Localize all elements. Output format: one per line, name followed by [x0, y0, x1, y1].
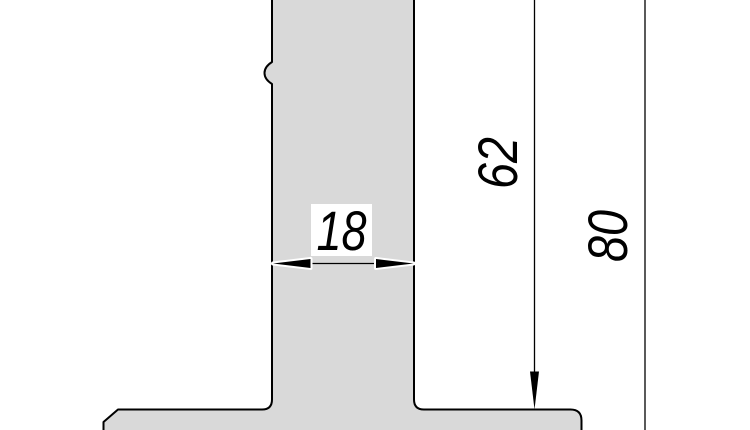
dim-text-upper-height: 62	[466, 137, 529, 189]
t-profile-drawing: 18 62 80	[0, 0, 750, 430]
dim-text-total-height: 80	[576, 210, 639, 262]
dim-text-stem-width: 18	[317, 199, 367, 262]
arrowhead-down-icon	[530, 372, 539, 410]
drawing-canvas: 18 62 80	[0, 0, 750, 430]
